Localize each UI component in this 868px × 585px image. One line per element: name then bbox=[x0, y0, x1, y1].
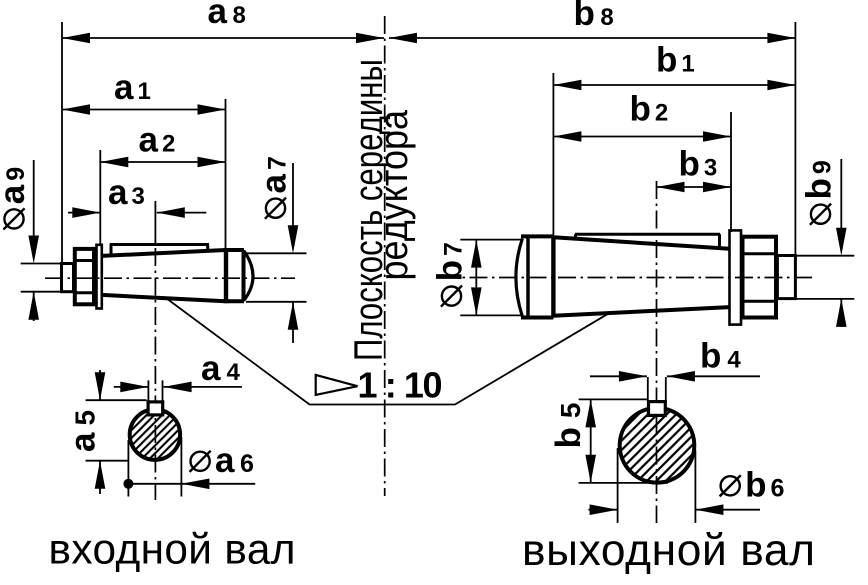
svg-text:выходной вал: выходной вал bbox=[522, 526, 815, 575]
svg-text:a8: a8 bbox=[208, 0, 246, 31]
svg-text:b8: b8 bbox=[574, 0, 614, 33]
svg-text:1 : 10: 1 : 10 bbox=[358, 365, 443, 406]
svg-text:a9: a9 bbox=[0, 167, 32, 204]
svg-text:редуктора: редуктора bbox=[372, 109, 416, 280]
svg-text:входной вал: входной вал bbox=[49, 526, 296, 573]
